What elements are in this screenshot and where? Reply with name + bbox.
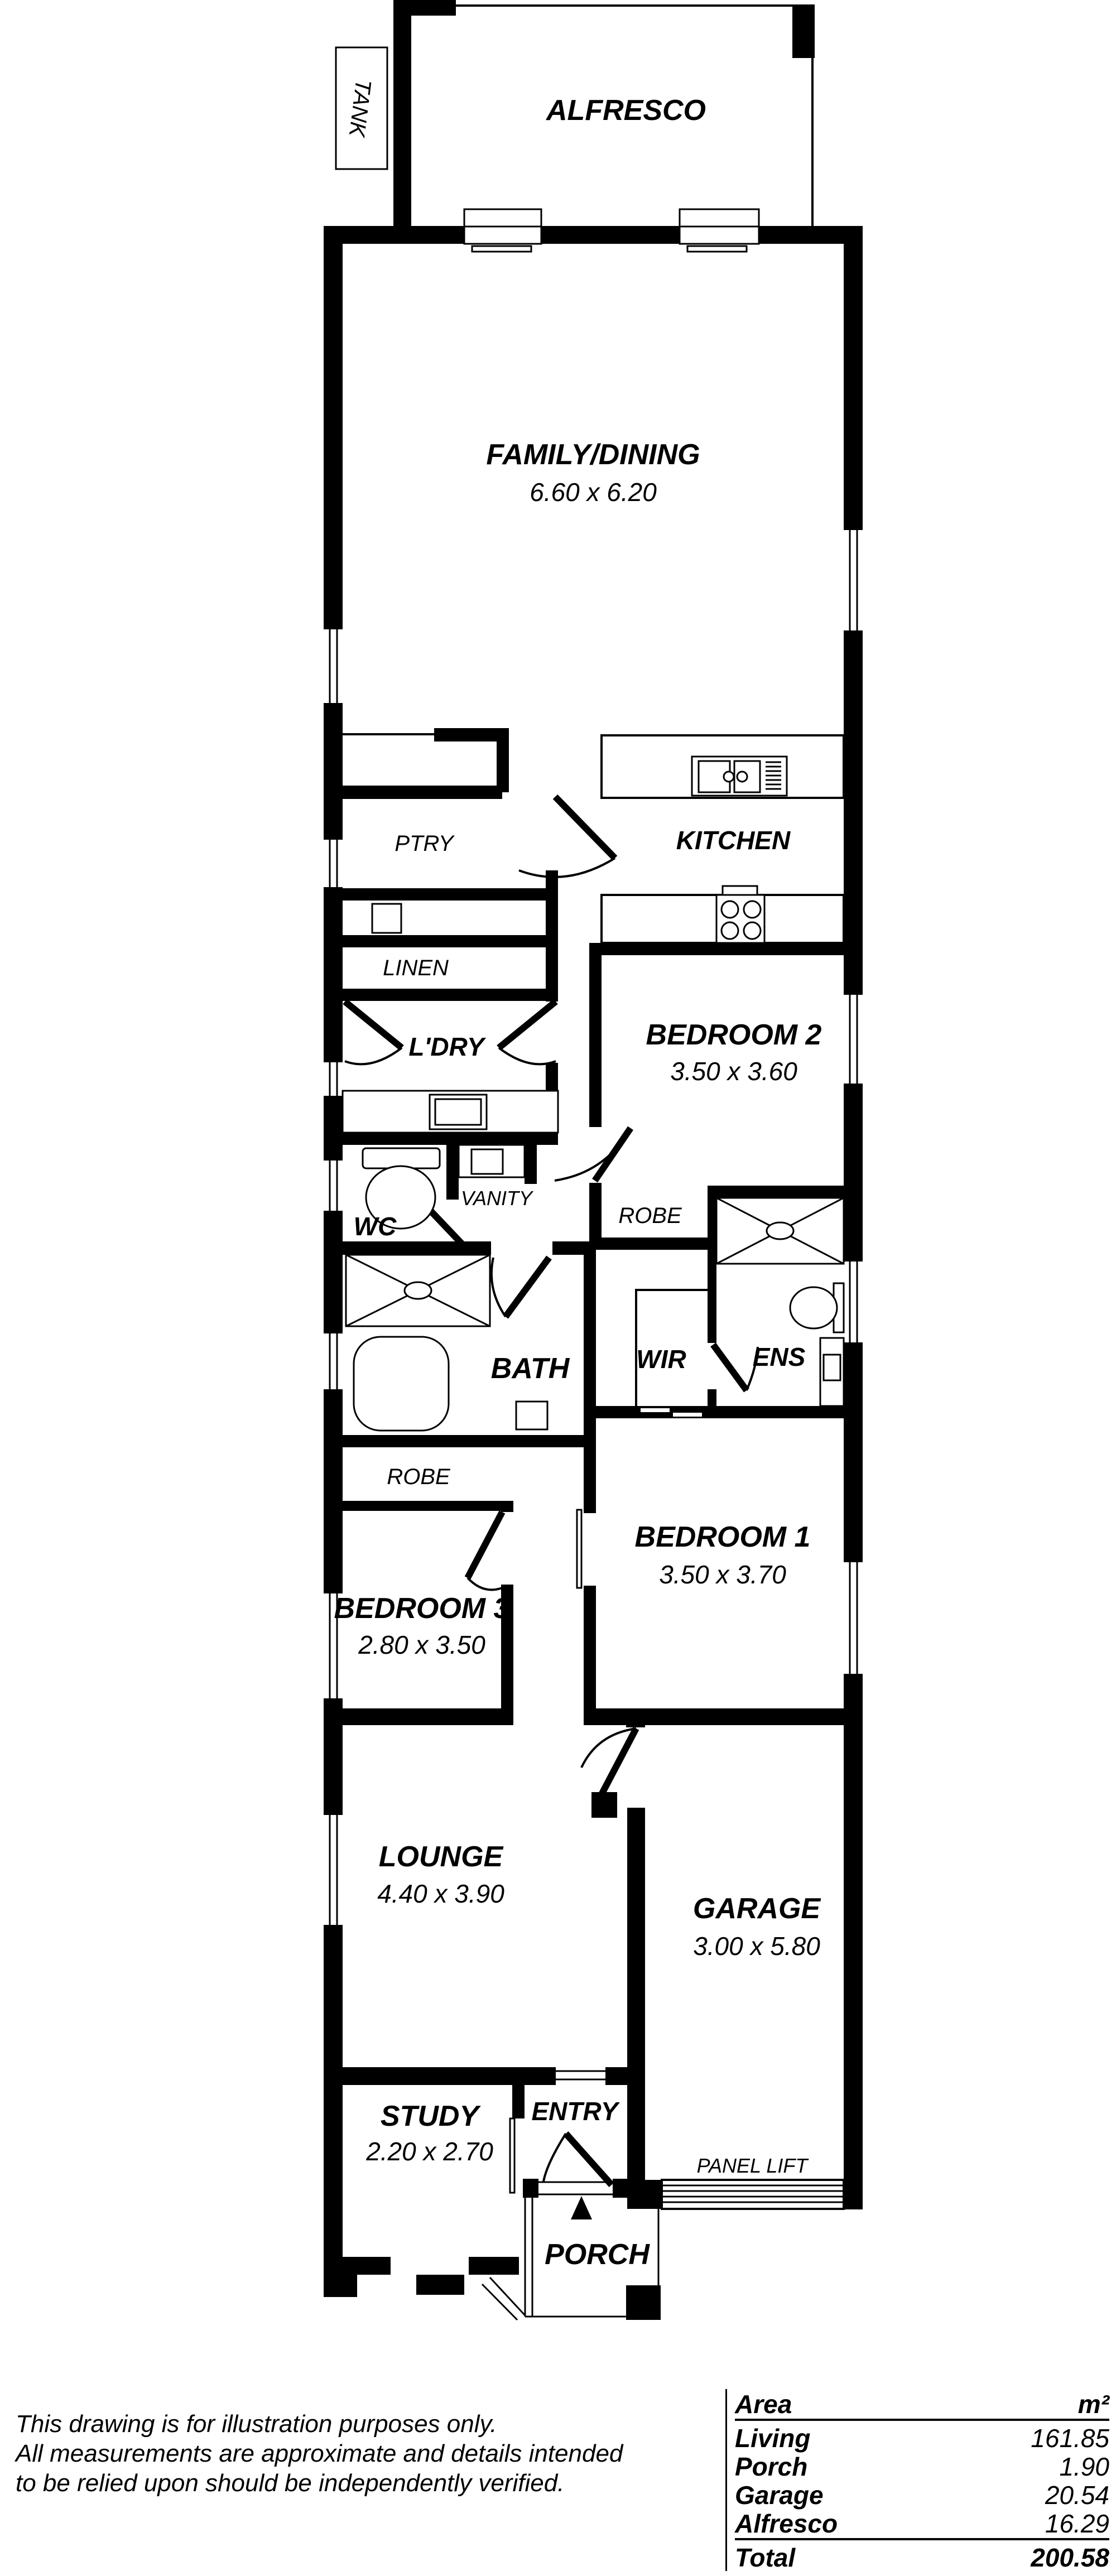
area-total-value: 200.58 [1031,2543,1109,2573]
garage-internal-door [581,1728,636,1797]
room-label-lounge: LOUNGE [379,1841,504,1873]
bath-basin [516,1402,547,1429]
room-label-study: STUDY [381,2100,482,2132]
disclaimer-line-1: This drawing is for illustration purpose… [16,2409,623,2439]
area-row-value: 1.90 [1059,2452,1109,2482]
area-row-value: 16.29 [1045,2508,1109,2539]
room-dims-lounge: 4.40 x 3.90 [377,1879,504,1908]
area-row-value: 20.54 [1045,2480,1109,2510]
area-total-label: Total [735,2543,795,2573]
area-row-label: Alfresco [735,2508,838,2539]
room-label-linen: LINEN [383,956,449,980]
room-label-robe-bed2: ROBE [618,1203,682,1228]
entry-threshold [538,2180,613,2197]
room-label-bedroom1: BEDROOM 1 [635,1521,811,1553]
area-table: Area m² Living 161.85 Porch 1.90 Garage … [725,2389,1109,2571]
bedroom3-door [468,1512,502,1590]
table-row: Living 161.85 [735,2423,1109,2452]
kitchen-island-bench [602,735,844,798]
bathtub [354,1337,449,1431]
bedroom2-door [555,1128,631,1181]
window [324,1815,343,1925]
disclaimer-line-2: All measurements are approximate and det… [16,2439,623,2468]
area-row-label: Living [735,2423,810,2453]
area-row-value: 161.85 [1031,2423,1109,2453]
room-dims-garage: 3.00 x 5.80 [693,1932,820,1961]
room-label-kitchen: KITCHEN [676,826,791,855]
doors [345,797,758,2185]
entry-arrow [571,2196,592,2219]
study-sliding-door [510,2118,514,2193]
window [844,995,863,1084]
room-label-robe-bed3: ROBE [387,1465,451,1489]
window [324,840,343,887]
area-table-header-unit: m² [1078,2389,1109,2419]
floorplan-page: TANK [0,0,1116,2576]
room-dims-family: 6.60 x 6.20 [530,478,657,507]
panel-lift-door [662,2180,844,2209]
window [324,1161,343,1211]
area-row-label: Porch [735,2452,807,2482]
sliding-door [464,209,541,252]
pantry-appliance [372,904,401,933]
table-row: Porch 1.90 [735,2452,1109,2480]
ensuite-vanity [820,1338,844,1406]
window [324,1333,343,1389]
front-door [543,2134,612,2185]
room-label-vanity: VANITY [461,1187,534,1210]
sliding-door [680,209,759,252]
room-dims-bedroom3: 2.80 x 3.50 [358,1630,485,1659]
laundry-door-right [499,1001,556,1064]
pantry-door [519,797,615,877]
room-label-porch: PORCH [545,2238,650,2271]
area-table-header-label: Area [735,2389,792,2419]
room-label-bedroom2: BEDROOM 2 [646,1019,822,1051]
cooktop [716,886,764,943]
cased-opening-lounge [556,2067,605,2085]
room-label-alfresco: ALFRESCO [545,94,706,127]
room-label-bedroom3: BEDROOM 3 [334,1592,510,1625]
window [844,1562,863,1674]
window [324,629,343,703]
area-row-label: Garage [735,2480,824,2510]
bedroom1-sliding-door [577,1510,581,1588]
ensuite-door [713,1345,758,1390]
ensuite-toilet [790,1283,844,1332]
disclaimer-line-3: to be relied upon should be independentl… [16,2468,623,2498]
room-dims-study: 2.20 x 2.70 [365,2137,493,2166]
area-table-total-row: Total 200.58 [735,2543,1109,2571]
room-label-wc: WC [354,1212,397,1241]
window [324,1062,343,1096]
disclaimer-text: This drawing is for illustration purpose… [16,2409,623,2498]
laundry-door-left [345,1001,402,1064]
room-label-ptry: PTRY [395,831,455,856]
bath-door [492,1258,549,1317]
room-dims-bedroom1: 3.50 x 3.70 [659,1560,786,1589]
room-label-ens: ENS [753,1342,806,1371]
water-tank: TANK [336,47,387,169]
room-label-wir: WIR [636,1345,686,1374]
laundry-bench [343,1091,558,1133]
table-row: Alfresco 16.29 [735,2508,1109,2537]
ensuite-shower [716,1198,844,1264]
window [844,1261,863,1342]
room-label-family: FAMILY/DINING [486,439,700,471]
area-table-header: Area m² [735,2389,1109,2418]
room-label-ldry: L'DRY [408,1032,487,1061]
tank-label: TANK [344,78,376,139]
panel-lift-label: PANEL LIFT [697,2154,810,2177]
table-row: Garage 20.54 [735,2480,1109,2508]
room-label-entry: ENTRY [531,2097,620,2126]
laundry-tub [430,1095,487,1129]
floorplan-canvas: TANK [0,0,1116,2576]
window [844,530,863,630]
room-label-bath: BATH [491,1352,570,1385]
kitchen-sink [692,757,787,796]
vanity-bench [459,1145,525,1177]
room-dims-bedroom2: 3.50 x 3.60 [670,1057,797,1086]
kitchen-back-bench [602,886,844,943]
room-label-garage: GARAGE [693,1893,821,1925]
bath-shower [346,1255,490,1326]
